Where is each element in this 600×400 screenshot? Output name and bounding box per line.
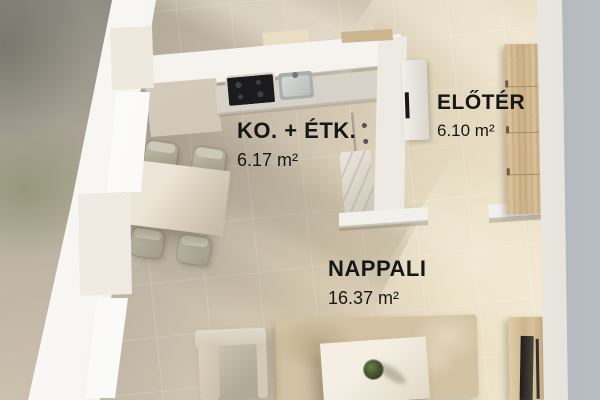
kitchen-sink (278, 71, 314, 101)
room-area: 6.17 m² (237, 151, 356, 169)
tv-cabinet-slat (536, 339, 540, 399)
floorplan-render: KO. + ÉTK. 6.17 m² ELŐTÉR 6.10 m² NAPPAL… (0, 0, 600, 400)
chair-backrest (148, 141, 176, 154)
room-name: NAPPALI (328, 258, 426, 280)
sink-bowl (281, 75, 311, 97)
door-handle (405, 92, 410, 118)
room-area: 16.37 m² (328, 289, 426, 307)
coffee-table (320, 336, 430, 400)
plant (363, 359, 383, 379)
wardrobe-handle (507, 168, 510, 175)
chair-backrest (134, 228, 162, 241)
room-label-kitchen-dining: KO. + ÉTK. 6.17 m² (237, 120, 356, 169)
tv-screen (520, 336, 534, 400)
entry-door (402, 60, 430, 141)
dining-chair (176, 234, 212, 266)
room-area: 6.10 m² (437, 122, 525, 139)
room-name: KO. + ÉTK. (237, 120, 356, 142)
room-label-hallway: ELŐTÉR 6.10 m² (437, 92, 525, 139)
room-label-living-room: NAPPALI 16.37 m² (328, 258, 426, 307)
dining-chair (129, 227, 165, 259)
armchair-armrest (198, 343, 220, 400)
chair-backrest (196, 147, 224, 160)
tv-cabinet (508, 317, 544, 400)
cooktop (227, 74, 275, 106)
armchair-seat (218, 344, 258, 400)
room-name: ELŐTÉR (437, 92, 525, 113)
armchair (195, 328, 269, 400)
chair-backrest (181, 235, 209, 248)
wardrobe-handle (505, 80, 508, 87)
